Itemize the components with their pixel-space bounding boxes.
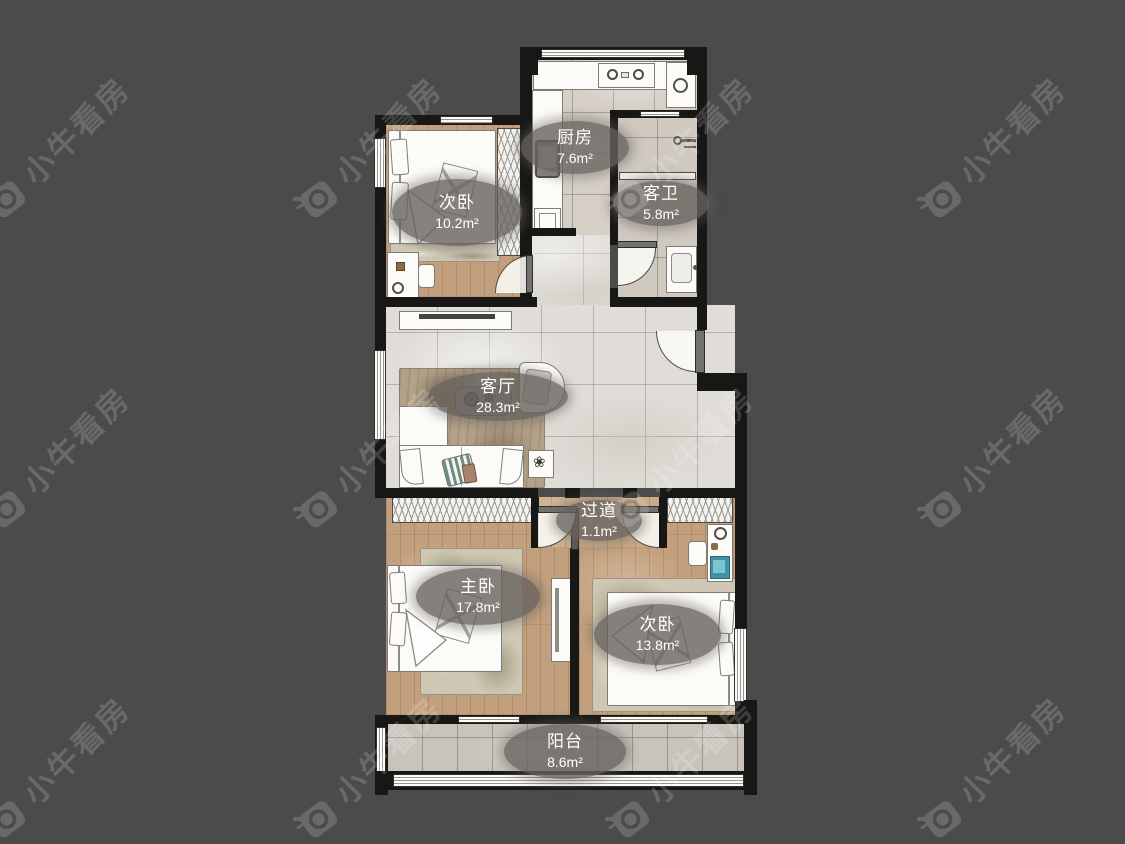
vanity-sink	[671, 253, 692, 283]
room-area: 17.8m²	[456, 598, 500, 616]
wall	[570, 548, 579, 723]
room-area: 7.6m²	[557, 149, 593, 167]
watermark: 小牛看房	[0, 64, 139, 232]
wall	[375, 297, 537, 307]
room-label-kitchen: 厨房 7.6m²	[521, 121, 629, 174]
watermark-text: 小牛看房	[946, 375, 1074, 503]
room-label-bedroom-southeast: 次卧 13.8m²	[594, 604, 721, 665]
bedroom-north-door	[526, 255, 533, 293]
bathroom-faucet-bar	[682, 139, 696, 142]
kitchen-sink-basin-right	[673, 78, 688, 93]
wall	[375, 488, 538, 498]
watermark-text: 小牛看房	[10, 65, 138, 193]
room-name: 客卫	[643, 183, 679, 205]
wall	[697, 373, 747, 391]
watermark-logo-icon	[283, 167, 348, 232]
watermark-logo-icon	[0, 167, 36, 232]
watermark-text: 小牛看房	[946, 685, 1074, 813]
master-wardrobe	[392, 497, 532, 523]
bedroom-se-chair	[688, 541, 707, 566]
room-label-hallway: 过道 1.1m²	[556, 500, 642, 541]
room-label-bedroom-north: 次卧 10.2m²	[392, 179, 522, 246]
living-room-window	[374, 350, 386, 440]
wall	[565, 488, 580, 498]
master-tv	[555, 588, 559, 652]
room-name: 厨房	[557, 127, 593, 149]
master-pillow-1	[389, 571, 407, 604]
watermark-text: 小牛看房	[946, 65, 1074, 193]
room-label-guest-bathroom: 客卫 5.8m²	[613, 181, 709, 226]
bedroom-se-wardrobe	[667, 497, 733, 523]
wall	[610, 297, 705, 307]
watermark-logo-icon	[283, 787, 348, 844]
bedroom-se-clock	[714, 527, 727, 540]
watermark-logo-icon	[907, 787, 972, 844]
bathroom-door	[617, 241, 657, 248]
watermark-text: 小牛看房	[10, 375, 138, 503]
room-name: 主卧	[460, 576, 496, 598]
bathroom-window	[640, 111, 680, 117]
bathroom-faucet	[673, 136, 682, 145]
bedroom-north-side-window	[374, 138, 386, 188]
watermark-text: 小牛看房	[10, 685, 138, 813]
room-area: 28.3m²	[476, 398, 520, 416]
watermark-logo-icon	[595, 787, 660, 844]
corridor-floor	[532, 235, 610, 305]
plant-icon: ❀	[533, 453, 546, 471]
room-name: 客厅	[480, 376, 516, 398]
bedroom-se-balcony-door	[600, 716, 708, 723]
bedroom-se-monitor-screen	[713, 560, 725, 573]
room-area: 8.6m²	[547, 753, 583, 771]
watermark: 小牛看房	[0, 374, 139, 542]
bathroom-faucet-bar2	[684, 146, 696, 148]
room-name: 阳台	[547, 731, 583, 753]
room-area: 10.2m²	[435, 214, 479, 232]
watermark: 小牛看房	[907, 684, 1075, 844]
watermark: 小牛看房	[907, 64, 1075, 232]
wall	[660, 488, 747, 498]
wall	[623, 488, 637, 498]
room-name: 次卧	[439, 192, 475, 214]
wall	[735, 390, 747, 497]
bedroom-se-window	[734, 628, 747, 702]
room-name: 次卧	[640, 614, 676, 636]
room-label-master-bedroom: 主卧 17.8m²	[416, 568, 540, 625]
watermark-logo-icon	[907, 477, 972, 542]
bedroom-north-chair	[418, 264, 435, 288]
sofa-chaise	[399, 406, 448, 448]
wall	[532, 228, 576, 236]
bedroom-north-top-window	[440, 116, 493, 124]
master-balcony-door	[458, 716, 520, 723]
watermark: 小牛看房	[0, 684, 139, 844]
watermark-logo-icon	[0, 477, 36, 542]
watermark-logo-icon	[0, 787, 36, 844]
room-area: 13.8m²	[636, 636, 680, 654]
kitchen-window	[541, 49, 685, 58]
wall	[659, 497, 667, 548]
bedroom-north-desk-lamp	[392, 282, 404, 294]
bedroom-se-pillow-1	[718, 600, 735, 635]
bedroom-se-desk-item	[711, 543, 718, 550]
bathroom-partition	[619, 172, 696, 180]
bedroom-north-desk-items	[396, 262, 405, 271]
entry-door	[695, 330, 705, 373]
room-name: 过道	[581, 500, 617, 522]
watermark-logo-icon	[283, 477, 348, 542]
floor-plan-image: ✽ ❀	[0, 0, 1125, 844]
tv	[419, 314, 495, 319]
balcony-left-window	[376, 727, 386, 773]
room-area: 1.1m²	[581, 522, 617, 540]
stove-burner-left	[607, 69, 618, 80]
watermark: 小牛看房	[907, 374, 1075, 542]
bedroom-north-pillow-1	[390, 138, 409, 175]
room-label-living-room: 客厅 28.3m²	[428, 372, 568, 421]
bedroom-se-pillow-2	[718, 642, 735, 677]
stove-knobs	[621, 72, 629, 78]
room-area: 5.8m²	[643, 205, 679, 223]
stove-burner-right	[633, 69, 644, 80]
room-label-balcony: 阳台 8.6m²	[504, 724, 626, 779]
watermark-logo-icon	[907, 167, 972, 232]
